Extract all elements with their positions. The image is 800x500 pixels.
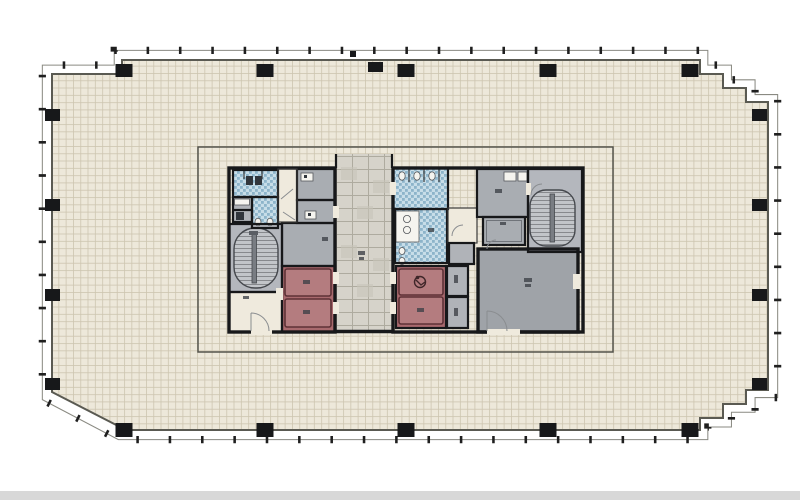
scan-edge-strip [0, 491, 800, 500]
structural-column [257, 423, 274, 437]
structural-column [398, 423, 415, 437]
structural-column [398, 64, 415, 77]
service-room [449, 243, 474, 264]
structural-column [540, 64, 557, 77]
structural-column [752, 378, 767, 390]
structural-column [116, 423, 133, 437]
service-core [229, 154, 583, 335]
structural-column [45, 199, 60, 211]
floor-plan [0, 0, 800, 500]
structural-column [682, 423, 699, 437]
elevator-car-accessible [399, 269, 443, 295]
structural-column [45, 378, 60, 390]
structural-column [45, 289, 60, 301]
floorplan-page [0, 0, 800, 500]
structural-column [45, 109, 60, 121]
structural-column [752, 199, 767, 211]
elevator-lobby-west [282, 223, 335, 266]
structural-column [540, 423, 557, 437]
small-room [483, 217, 525, 245]
mechanical-room [478, 249, 578, 332]
gridline-marker [350, 51, 356, 57]
structural-column [682, 64, 699, 77]
gridline-marker [368, 62, 383, 72]
core-lobby-west [229, 292, 282, 332]
stair-run-east [530, 190, 575, 246]
structural-column [752, 289, 767, 301]
structural-column [752, 109, 767, 121]
structural-column [116, 64, 133, 77]
stair-run-west [234, 228, 278, 288]
structural-column [257, 64, 274, 77]
